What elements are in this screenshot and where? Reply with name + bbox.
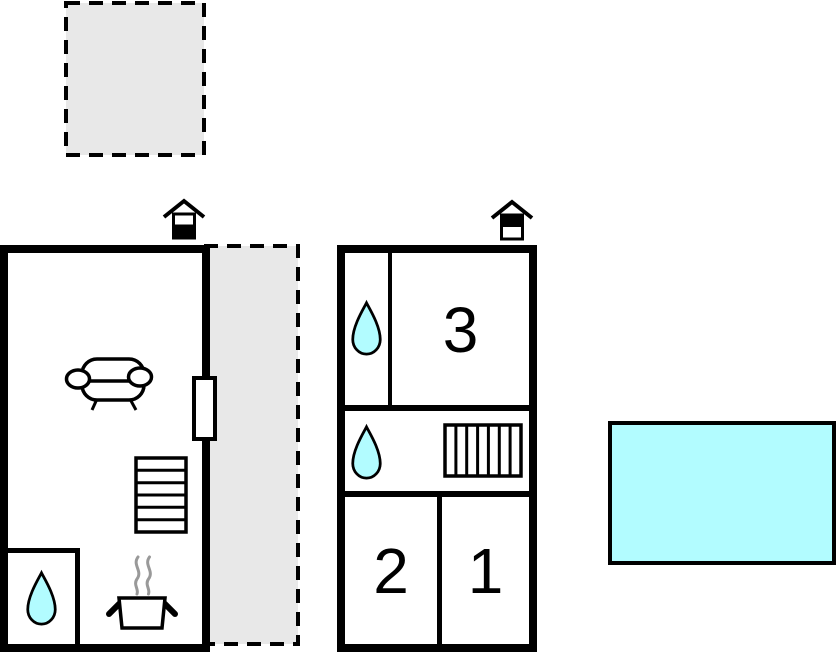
room-2-label: 2 (345, 497, 437, 644)
chimney-icon (489, 199, 535, 241)
water-drop-icon (25, 569, 58, 628)
swimming-pool (608, 421, 836, 565)
floor-plan-canvas: 3 2 1 (0, 0, 838, 652)
staircase-horizontal-icon (134, 456, 188, 534)
staircase-vertical-icon (442, 422, 524, 479)
water-drop-icon (350, 423, 383, 482)
room-1-label: 1 (442, 497, 529, 644)
stove-icon (106, 552, 178, 632)
bathroom-wall-top (8, 548, 80, 553)
floor-wall-upper (345, 405, 529, 411)
terrace-upper-area (62, 0, 208, 158)
terrace-side-area (202, 242, 302, 648)
chimney-icon (161, 198, 207, 240)
room-3-label: 3 (392, 255, 529, 405)
bathroom-wall-right (75, 548, 80, 644)
door-window (192, 376, 217, 441)
water-drop-icon (350, 299, 383, 358)
sofa-icon (64, 356, 156, 414)
